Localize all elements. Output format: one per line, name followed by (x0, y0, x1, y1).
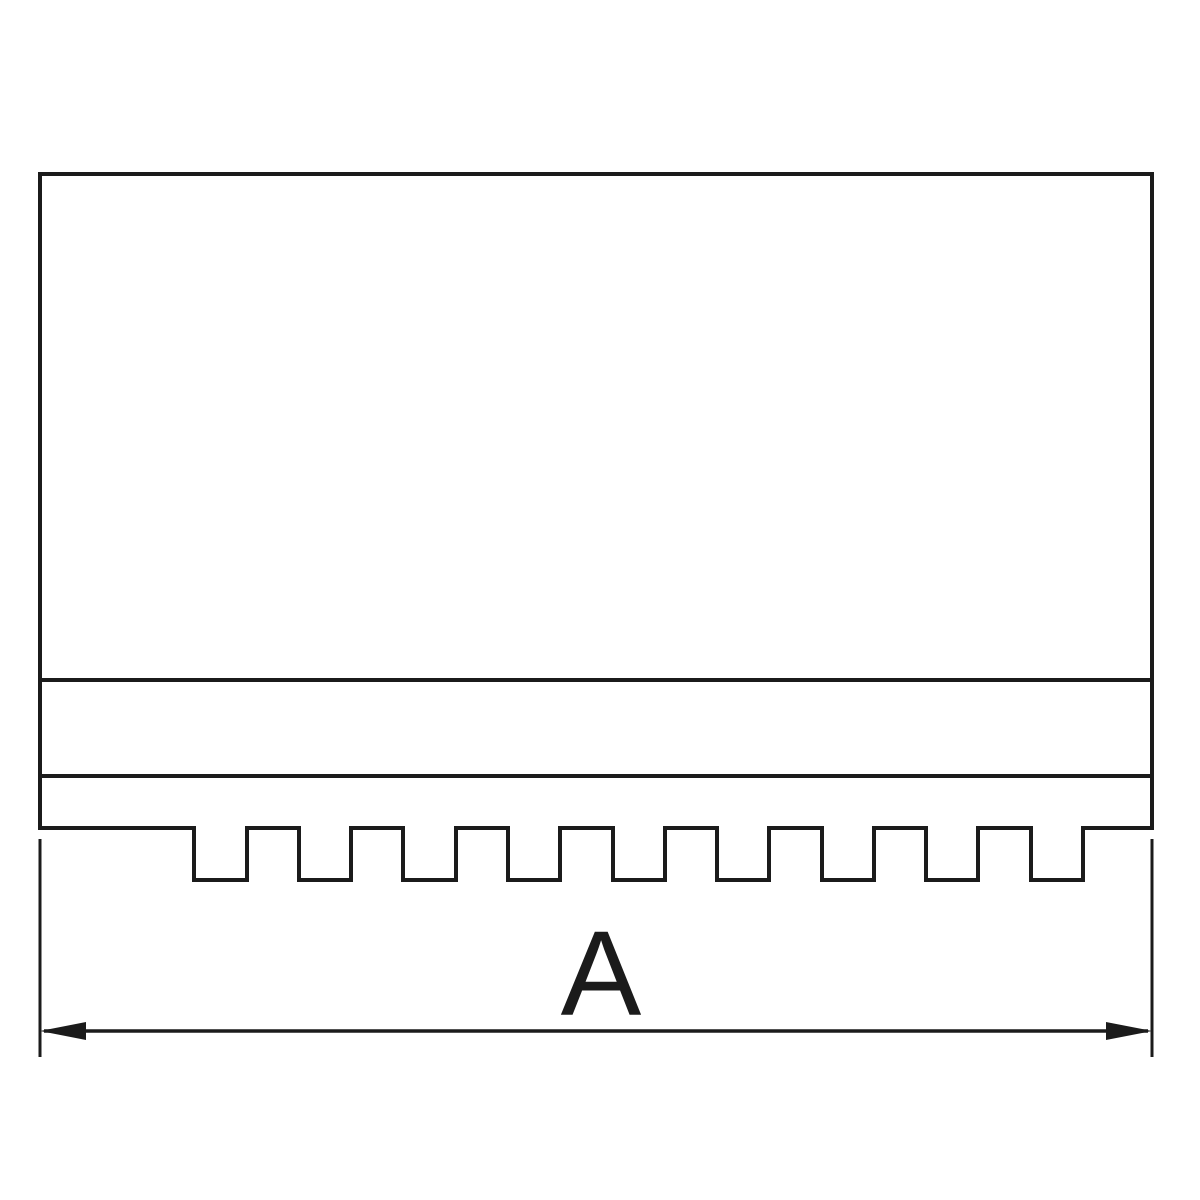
technical-drawing-canvas: A (0, 0, 1200, 1200)
dimension-label: A (561, 905, 642, 1041)
jaw-profile-drawing: A (0, 0, 1200, 1200)
dimension-arrow-left-icon (40, 1022, 86, 1040)
dimension-arrow-right-icon (1106, 1022, 1152, 1040)
